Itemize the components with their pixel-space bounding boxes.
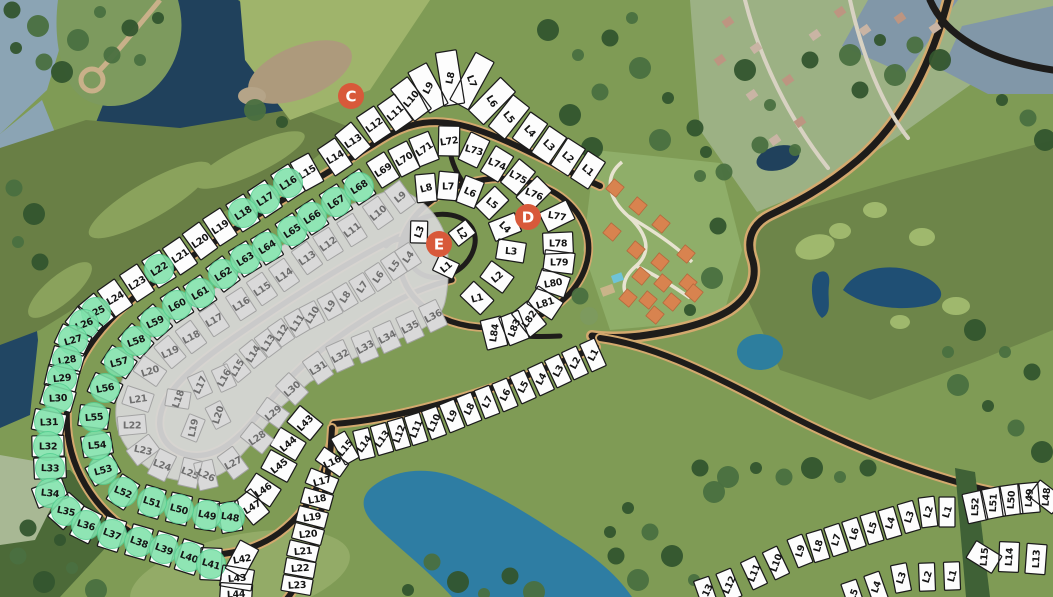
tree-cluster <box>152 12 164 24</box>
tree-cluster <box>66 562 78 574</box>
tree-cluster <box>23 203 45 225</box>
section-marker-C[interactable]: C <box>338 83 364 109</box>
lot-label: L49 <box>1024 489 1036 508</box>
lot-label: L33 <box>41 463 60 475</box>
tree-cluster <box>20 520 37 537</box>
tree-cluster <box>750 462 762 474</box>
tree-cluster <box>642 524 659 541</box>
tree-cluster <box>622 502 634 514</box>
tree-cluster <box>33 571 55 593</box>
tree-cluster <box>929 49 951 71</box>
tree-cluster <box>692 460 709 477</box>
tree-cluster <box>629 57 651 79</box>
lot-label: L20 <box>298 528 318 541</box>
tree-cluster <box>834 471 846 483</box>
tree-cluster <box>12 236 24 248</box>
tree-cluster <box>801 457 823 479</box>
golf-green <box>863 202 887 218</box>
tree-cluster <box>32 254 49 271</box>
lot-label: L15 <box>979 547 992 566</box>
tree-cluster <box>700 146 712 158</box>
tree-cluster <box>996 94 1008 106</box>
golf-green <box>890 315 910 329</box>
tree-cluster <box>964 319 986 341</box>
tree-cluster <box>734 59 756 81</box>
tree-cluster <box>839 44 861 66</box>
tree-cluster <box>1024 364 1041 381</box>
tree-cluster <box>10 42 22 54</box>
pond <box>737 334 783 370</box>
lot-label: L13 <box>1031 550 1043 569</box>
tree-cluster <box>94 6 106 18</box>
golf-green <box>909 228 935 246</box>
tree-cluster <box>907 37 924 54</box>
lot-label: L23 <box>288 580 307 592</box>
tree-cluster <box>572 288 589 305</box>
peninsula-cul-de-sac <box>81 69 103 91</box>
tree-cluster <box>860 460 877 477</box>
lot-label: L22 <box>123 420 141 431</box>
tree-cluster <box>687 120 704 137</box>
tree-cluster <box>6 180 23 197</box>
tree-cluster <box>244 99 266 121</box>
tree-cluster <box>54 534 66 546</box>
tree-cluster <box>776 469 793 486</box>
tree-cluster <box>36 54 53 71</box>
tree-cluster <box>764 99 776 111</box>
tree-cluster <box>51 61 73 83</box>
tree-cluster <box>852 82 869 99</box>
tree-cluster <box>947 374 969 396</box>
tree-cluster <box>802 52 819 69</box>
lot-label: L79 <box>550 257 568 268</box>
tree-cluster <box>1008 420 1025 437</box>
lot-label: L51 <box>988 494 1000 513</box>
lot-label: L31 <box>40 417 59 429</box>
tree-cluster <box>122 20 139 37</box>
tree-cluster <box>874 34 886 46</box>
tree-cluster <box>134 54 146 66</box>
tree-cluster <box>604 526 616 538</box>
lot-label: L22 <box>291 563 310 575</box>
tree-cluster <box>608 548 625 565</box>
tree-cluster <box>626 12 638 24</box>
lot-label: L30 <box>49 393 69 405</box>
tree-cluster <box>502 568 519 585</box>
tree-cluster <box>789 144 801 156</box>
lot-label: L78 <box>549 238 568 249</box>
lot-label: L44 <box>227 589 247 597</box>
tree-cluster <box>661 545 683 567</box>
tree-cluster <box>1031 441 1053 463</box>
tree-cluster <box>716 164 733 181</box>
tree-cluster <box>67 29 89 51</box>
tree-cluster <box>559 104 581 126</box>
lot-label: L32 <box>39 441 57 452</box>
tree-cluster <box>592 84 609 101</box>
tree-cluster <box>602 30 619 47</box>
tree-cluster <box>752 137 769 154</box>
lot-label: L14 <box>1004 547 1016 567</box>
tree-cluster <box>982 400 994 412</box>
marker-letter: C <box>345 87 356 105</box>
section-marker-E[interactable]: E <box>426 231 452 257</box>
tree-cluster <box>942 346 954 358</box>
lot-label: L3 <box>504 246 517 258</box>
tree-cluster <box>627 569 649 591</box>
tree-cluster <box>662 92 674 104</box>
marker-letter: E <box>434 235 444 253</box>
tree-cluster <box>1020 110 1037 127</box>
tree-cluster <box>402 584 414 596</box>
lot-label: L55 <box>84 412 103 425</box>
lot-label: L7 <box>442 181 454 192</box>
siteplan-map: L1L2L3L4L5L6L7L8L9L10L11L12L13L14L15L16L… <box>0 0 1053 597</box>
tree-cluster <box>649 129 671 151</box>
lot-label: L21 <box>293 546 312 559</box>
grass-island <box>580 307 598 325</box>
lot-label: L34 <box>40 487 60 500</box>
lot-label: L52 <box>970 498 982 517</box>
tree-cluster <box>276 116 288 128</box>
lot-label: L54 <box>87 439 107 452</box>
tree-cluster <box>104 47 121 64</box>
tree-cluster <box>884 64 906 86</box>
tree-cluster <box>701 267 723 289</box>
tree-cluster <box>424 554 441 571</box>
tree-cluster <box>703 481 725 503</box>
tree-cluster <box>572 49 584 61</box>
golf-green <box>942 297 970 315</box>
section-marker-D[interactable]: D <box>515 204 541 230</box>
tree-cluster <box>447 571 469 593</box>
tree-cluster <box>999 346 1011 358</box>
lot-label: L50 <box>1006 490 1018 510</box>
golf-green <box>829 223 851 239</box>
tree-cluster <box>10 548 27 565</box>
tree-cluster <box>710 218 727 235</box>
tree-cluster <box>4 2 21 19</box>
tree-cluster <box>27 15 49 37</box>
marker-letter: D <box>522 208 534 226</box>
lot-label: L48 <box>1041 487 1053 507</box>
tree-cluster <box>537 19 559 41</box>
tree-cluster <box>684 304 696 316</box>
tree-cluster <box>694 170 706 182</box>
